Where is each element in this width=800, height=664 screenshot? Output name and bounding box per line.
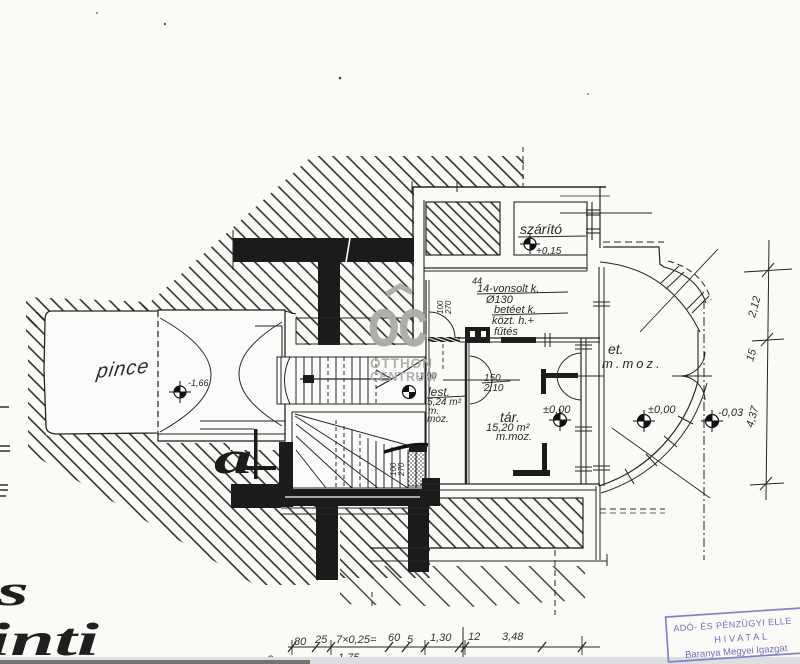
svg-text:5: 5 — [407, 634, 414, 646]
svg-text:3,48: 3,48 — [502, 631, 524, 643]
svg-text:a: a — [214, 433, 252, 483]
svg-text:7×0,25=: 7×0,25= — [336, 634, 377, 646]
svg-text:270: 270 — [397, 462, 406, 477]
svg-text:OC: OC — [369, 301, 428, 356]
svg-text:25: 25 — [314, 634, 328, 646]
svg-text:fűtés: fűtés — [494, 326, 518, 338]
svg-text:80: 80 — [294, 636, 307, 648]
svg-text:12: 12 — [468, 631, 480, 643]
svg-text:CENTRUM: CENTRUM — [370, 370, 436, 384]
svg-text:OTTHON: OTTHON — [370, 356, 433, 371]
svg-text:moz.: moz. — [427, 414, 449, 425]
svg-text:szárító: szárító — [520, 221, 562, 237]
svg-text:et.: et. — [608, 341, 624, 357]
svg-text:1,30: 1,30 — [430, 632, 452, 644]
svg-text:m.moz.: m.moz. — [496, 431, 532, 443]
svg-text:2,10: 2,10 — [483, 383, 504, 394]
svg-text:60: 60 — [388, 632, 401, 644]
svg-text:inti: inti — [0, 614, 99, 664]
svg-text:±0,00: ±0,00 — [648, 404, 676, 416]
svg-text:270: 270 — [444, 300, 453, 315]
svg-text:-1,66: -1,66 — [188, 378, 209, 388]
svg-text:-0,03: -0,03 — [718, 407, 744, 419]
svg-text:+0,15: +0,15 — [536, 246, 562, 257]
svg-text:s: s — [0, 567, 29, 614]
svg-text:m.moz.: m.moz. — [602, 356, 663, 371]
